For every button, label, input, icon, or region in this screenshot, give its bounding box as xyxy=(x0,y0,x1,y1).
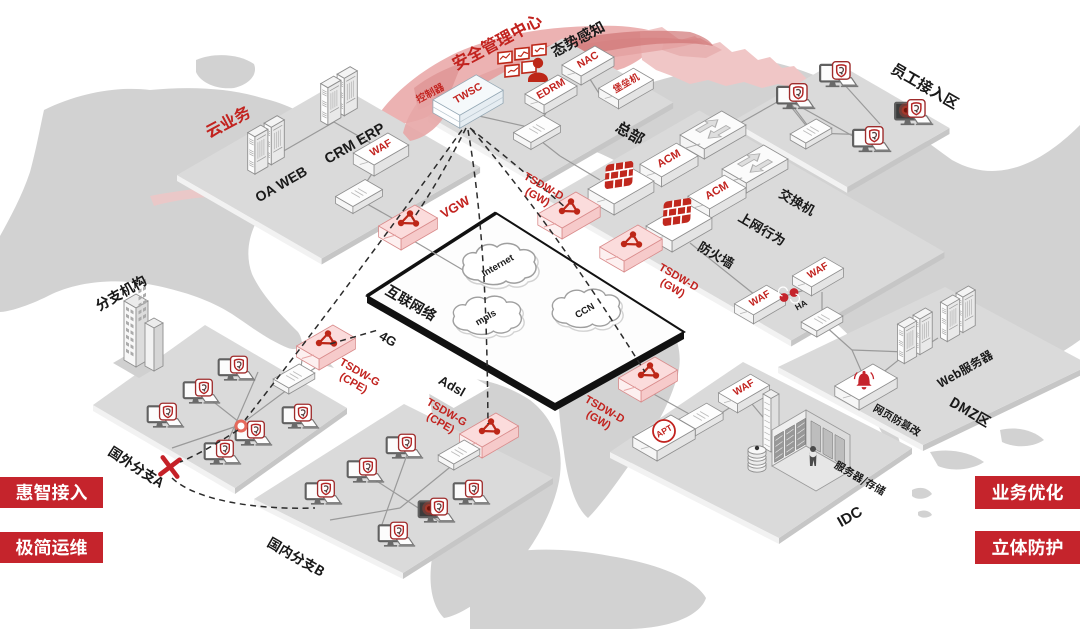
svg-text:VGW: VGW xyxy=(438,192,473,221)
svg-text:IDC: IDC xyxy=(835,503,866,531)
